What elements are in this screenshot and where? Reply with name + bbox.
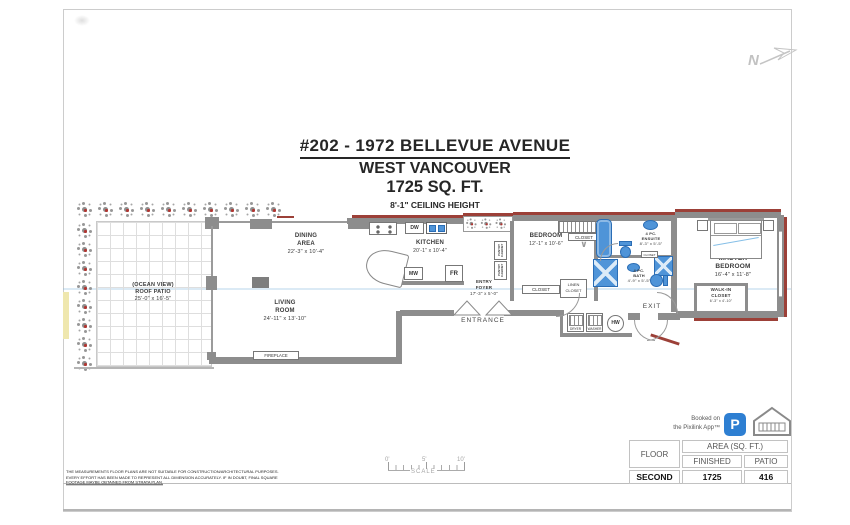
bath-label: 4 PC. BATH 4'-9" x 5'-5" bbox=[626, 268, 652, 284]
area-summary-table: FLOOR AREA (SQ. FT.) FINISHED PATIO SECO… bbox=[627, 438, 790, 486]
living-room-label: LIVING ROOM 24'-11" x 13'-10" bbox=[248, 300, 322, 323]
dishwasher: DW bbox=[405, 222, 424, 234]
area-header-cell: AREA (SQ. FT.) bbox=[682, 440, 788, 453]
wall-segment bbox=[400, 310, 454, 316]
master-window bbox=[779, 231, 782, 297]
plant-icon bbox=[464, 217, 479, 230]
ceiling-height: 8'-1" CEILING HEIGHT bbox=[240, 200, 630, 210]
kitchen-label: KITCHEN 20'-1" x 10'-4" bbox=[398, 240, 462, 254]
page-bottom-edge bbox=[63, 509, 791, 511]
kitchen-sink bbox=[426, 222, 447, 234]
washer: WASHER bbox=[586, 313, 603, 332]
pixilink-credit: Booked on the Pixilink App™ bbox=[648, 415, 720, 433]
microwave: MW bbox=[404, 267, 423, 280]
closet-label: CLOSET bbox=[641, 251, 658, 258]
dining-area-label: DINING AREA 22'-3" x 10'-4" bbox=[270, 233, 342, 256]
wall-segment bbox=[250, 219, 272, 229]
ensuite-shower bbox=[654, 256, 673, 276]
area-title: 1725 SQ. FT. bbox=[240, 178, 630, 197]
floor-header-cell: FLOOR bbox=[629, 440, 680, 468]
scan-yellow-artifact bbox=[63, 292, 69, 339]
plant-icon bbox=[74, 259, 95, 278]
entry-planter bbox=[463, 216, 513, 232]
plant-icon bbox=[74, 221, 95, 240]
wall-accent bbox=[694, 318, 778, 321]
plant-icon bbox=[493, 217, 508, 230]
plant-icon bbox=[74, 278, 95, 297]
pantry-cabinet: PANTRY CABINET bbox=[494, 241, 507, 260]
bed bbox=[710, 220, 762, 259]
roof-patio-label: (OCEAN VIEW) ROOF PATIO 25'-0" x 16'-5" bbox=[112, 282, 194, 303]
floorplan-page: N #202 - 1972 BELLEVUE AVENUE WEST VANCO… bbox=[0, 0, 850, 525]
plant-icon bbox=[179, 200, 200, 219]
entry-foyer-label: ENTRY FOYER 17'-3" x 5'-0" bbox=[462, 279, 506, 297]
entrance-label: ENTRANCE bbox=[450, 317, 516, 325]
plant-icon bbox=[74, 316, 95, 335]
plant-icon bbox=[116, 200, 137, 219]
bath-toilet bbox=[650, 274, 668, 287]
wall-segment bbox=[211, 226, 213, 358]
bath-shower bbox=[593, 259, 618, 287]
scale-bar: 0' 5' 10' SCALE bbox=[388, 457, 478, 481]
address-title: #202 - 1972 BELLEVUE AVENUE bbox=[300, 136, 571, 159]
wall-segment bbox=[211, 221, 347, 223]
wall-segment bbox=[560, 333, 632, 337]
fridge: FR bbox=[445, 265, 463, 282]
closet-label: CLOSET bbox=[522, 285, 560, 294]
ensuite-sink bbox=[643, 220, 658, 230]
column bbox=[252, 277, 269, 288]
entrance-doors bbox=[452, 298, 516, 316]
disclaimer: THE MEASUREMENTS FLOOR PLANS ARE NOT SUI… bbox=[66, 470, 338, 486]
nightstand bbox=[763, 220, 774, 231]
plant-icon bbox=[95, 200, 116, 219]
plant-icon bbox=[74, 335, 95, 354]
scan-smudge bbox=[74, 15, 90, 26]
nightstand bbox=[697, 220, 708, 231]
exit-label: EXIT bbox=[636, 303, 668, 311]
stove bbox=[369, 222, 397, 235]
fireplace: FIREPLACE bbox=[253, 351, 299, 360]
plant-icon bbox=[242, 200, 263, 219]
walkin-closet-label: WALK-IN CLOSET 6'-3" x 4'-10" bbox=[700, 287, 742, 303]
pantry-cabinet: PANTRY CABINET bbox=[494, 261, 507, 280]
plant-icon bbox=[221, 200, 242, 219]
disclaimer-line: FOOTAGE MAYBE OBTAINED FROM STRATA PLAN. bbox=[66, 480, 338, 485]
patio-plant-column bbox=[74, 221, 95, 373]
patio-plant-row bbox=[74, 200, 286, 220]
wall-segment bbox=[209, 357, 402, 364]
wall-segment bbox=[206, 276, 217, 290]
patio-header-cell: PATIO bbox=[744, 455, 788, 468]
plant-icon bbox=[74, 200, 95, 219]
hot-water-tank: HW bbox=[607, 315, 624, 332]
wall-accent bbox=[784, 217, 787, 317]
north-letter: N bbox=[748, 52, 760, 69]
ensuite-label: 4 PC. ENSUITE 8'-3" x 5'-5" bbox=[630, 231, 672, 247]
patio-value-cell: 416 bbox=[744, 470, 788, 484]
measurement-company-logo-icon bbox=[752, 406, 792, 437]
plant-icon bbox=[74, 240, 95, 259]
floor-value-cell: SECOND bbox=[629, 470, 680, 484]
pixilink-app-icon: P bbox=[724, 413, 746, 436]
scale-label: SCALE bbox=[410, 469, 437, 475]
finished-header-cell: FINISHED bbox=[682, 455, 742, 468]
dryer: DRYER bbox=[567, 313, 584, 332]
city-title: WEST VANCOUVER bbox=[240, 160, 630, 178]
wall-segment bbox=[396, 311, 402, 364]
plant-icon bbox=[158, 200, 179, 219]
plant-icon bbox=[74, 354, 95, 373]
plant-icon bbox=[137, 200, 158, 219]
patio-bottom-edge bbox=[74, 367, 214, 369]
north-arrow-icon: N bbox=[746, 40, 804, 74]
plant-icon bbox=[479, 217, 494, 230]
entry-plants bbox=[464, 217, 498, 230]
bifold-door: ∨ bbox=[576, 239, 592, 251]
title-block: #202 - 1972 BELLEVUE AVENUE WEST VANCOUV… bbox=[240, 136, 630, 210]
plant-icon bbox=[74, 297, 95, 316]
wall-accent bbox=[277, 216, 294, 218]
finished-value-cell: 1725 bbox=[682, 470, 742, 484]
wall-segment bbox=[628, 313, 640, 320]
